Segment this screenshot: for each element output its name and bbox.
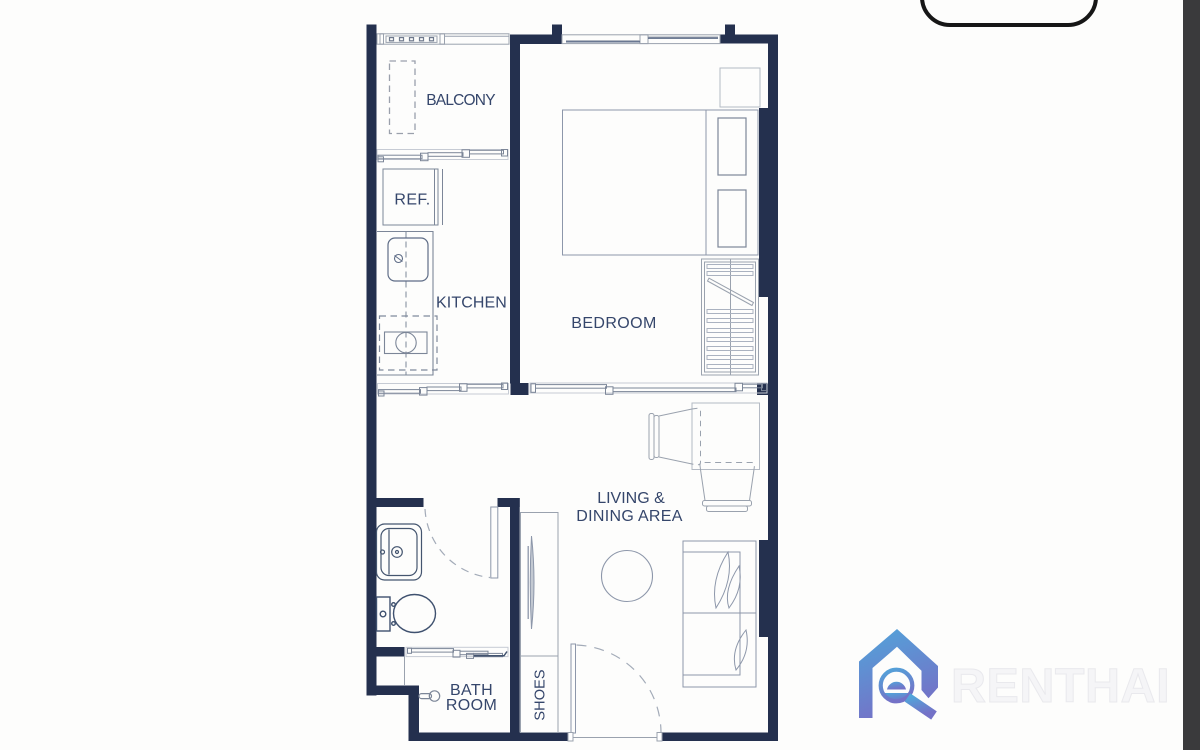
svg-text:ROOM: ROOM bbox=[446, 697, 497, 714]
svg-text:SHOES: SHOES bbox=[532, 669, 548, 720]
svg-text:DINING AREA: DINING AREA bbox=[576, 508, 682, 525]
svg-text:BALCONY: BALCONY bbox=[426, 92, 495, 109]
svg-text:RENTHAI: RENTHAI bbox=[951, 659, 1170, 713]
svg-text:LIVING &: LIVING & bbox=[597, 490, 665, 507]
svg-text:BEDROOM: BEDROOM bbox=[571, 315, 656, 332]
svg-text:REF.: REF. bbox=[394, 192, 430, 209]
svg-text:KITCHEN: KITCHEN bbox=[436, 295, 507, 312]
